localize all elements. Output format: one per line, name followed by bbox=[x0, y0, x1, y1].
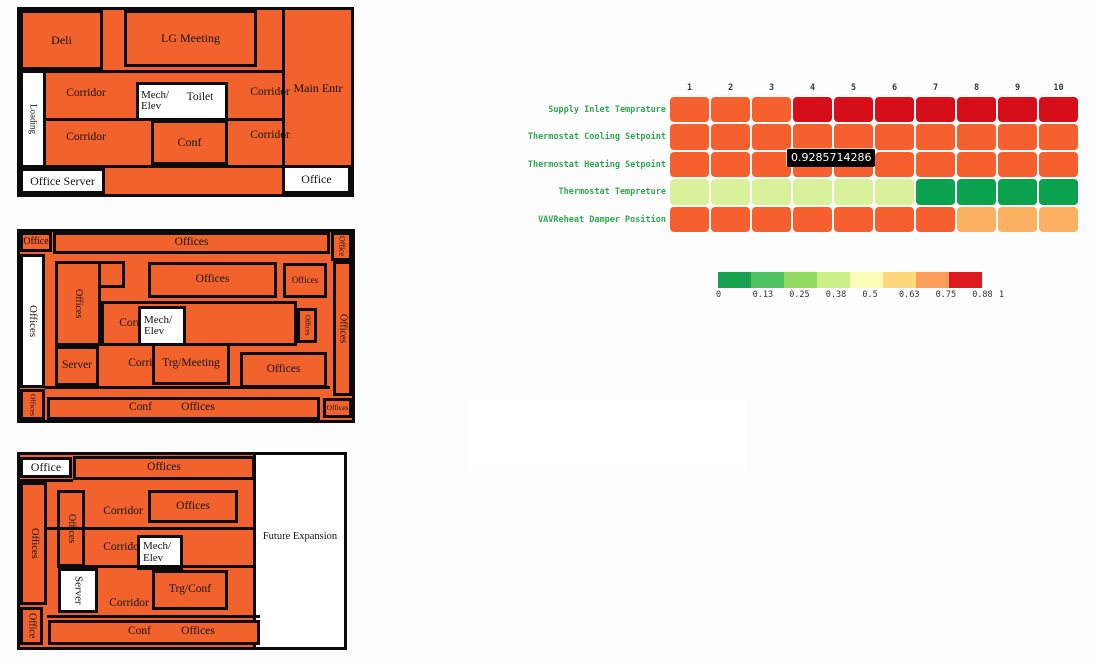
heatmap-cell-r5-c1[interactable] bbox=[670, 207, 709, 232]
heatmap-cell-r3-c1[interactable] bbox=[670, 152, 709, 177]
colorbar-segment-5 bbox=[850, 272, 883, 288]
floor-3-label-corridor-1: Corridor bbox=[92, 505, 154, 519]
heatmap-column-label-4: 4 bbox=[793, 83, 832, 93]
floor-2-room-offices-left: Offices bbox=[20, 254, 45, 388]
heatmap-cell-r4-c10[interactable] bbox=[1039, 179, 1078, 204]
floor-1-label-corridor-4: Corridor bbox=[239, 129, 301, 143]
heatmap-cell-r3-c9[interactable] bbox=[998, 152, 1037, 177]
floor-3-room-server: Server bbox=[58, 568, 98, 613]
heatmap-cell-r3-c2[interactable] bbox=[711, 152, 750, 177]
heatmap-cell-r5-c5[interactable] bbox=[834, 207, 873, 232]
floor-3-label-corridor-3: Corridor bbox=[98, 597, 160, 611]
heatmap-row-label-1: Supply Inlet Temprature bbox=[400, 105, 666, 115]
screenshot-canvas: DeliLG MeetingLoadingMech/ ElevToiletCon… bbox=[0, 0, 1094, 663]
heatmap-cell-r5-c2[interactable] bbox=[711, 207, 750, 232]
heatmap-cell-r1-c7[interactable] bbox=[916, 97, 955, 122]
floor-3-label-conf-b: Conf bbox=[117, 624, 162, 639]
heatmap-row-label-5: VAVReheat Damper Position bbox=[400, 215, 666, 225]
heatmap-cell-r5-c9[interactable] bbox=[998, 207, 1037, 232]
floor-3-label-offices-b: Offices bbox=[168, 624, 228, 639]
floor-2-room-offices-right: Offices bbox=[333, 261, 352, 396]
heatmap-column-label-1: 1 bbox=[670, 83, 709, 93]
floor-1-wall-h1 bbox=[20, 70, 285, 73]
floor-2-room-trg-meeting: Trg/Meeting bbox=[152, 343, 230, 385]
colorbar-segment-3 bbox=[784, 272, 817, 288]
heatmap-cell-r5-c4[interactable] bbox=[793, 207, 832, 232]
floor-3-wall-h3 bbox=[47, 615, 260, 618]
floor-2-room-offices-top: Offices bbox=[53, 232, 330, 254]
floorplan-floor-1: DeliLG MeetingLoadingMech/ ElevToiletCon… bbox=[17, 7, 354, 197]
heatmap-cell-r5-c10[interactable] bbox=[1039, 207, 1078, 232]
floor-2-label-offices-b: Offices bbox=[168, 400, 228, 416]
heatmap-row-label-4: Thermostat Tempreture bbox=[400, 187, 666, 197]
heatmap-row-label-3: Thermostat Heating Setpoint bbox=[400, 160, 666, 170]
heatmap-cell-r5-c6[interactable] bbox=[875, 207, 914, 232]
heatmap-cell-r2-c2[interactable] bbox=[711, 124, 750, 149]
heatmap-cell-r3-c8[interactable] bbox=[957, 152, 996, 177]
floor-3-room-offices-mid: Offices bbox=[148, 490, 238, 523]
colorbar-tick-0.38: 0.38 bbox=[826, 290, 846, 300]
heatmap-cell-r2-c3[interactable] bbox=[752, 124, 791, 149]
floor-1-room-loading: Loading bbox=[20, 70, 46, 168]
colorbar-tick-0.75: 0.75 bbox=[936, 290, 956, 300]
floor-3-room-trg-conf: Trg/Conf bbox=[152, 570, 228, 610]
heatmap-column-label-6: 6 bbox=[875, 83, 914, 93]
colorbar-tick-0.63: 0.63 bbox=[899, 290, 919, 300]
floor-3-room-offices-top: Offices bbox=[73, 456, 255, 480]
heatmap-tooltip: 0.9285714286 bbox=[787, 149, 875, 167]
heatmap-cell-r5-c7[interactable] bbox=[916, 207, 955, 232]
heatmap-cell-r4-c1[interactable] bbox=[670, 179, 709, 204]
heatmap-column-label-8: 8 bbox=[957, 83, 996, 93]
heatmap-cell-r2-c1[interactable] bbox=[670, 124, 709, 149]
floor-3-room-offices-left: Offices bbox=[20, 482, 47, 605]
floor-1-room-deli: Deli bbox=[20, 10, 103, 70]
colorbar-segment-1 bbox=[718, 272, 751, 288]
floor-2-room-offices-inner: Offices bbox=[55, 261, 101, 346]
heatmap-column-label-5: 5 bbox=[834, 83, 873, 93]
colorbar-tick-1: 1 bbox=[999, 290, 1004, 300]
colorbar-segment-7 bbox=[916, 272, 949, 288]
floorplan-floor-2: OfficeOfficesOfficeOfficesOfficesOffices… bbox=[17, 229, 355, 423]
colorbar-tick-0.5: 0.5 bbox=[862, 290, 877, 300]
floor-3-label-future-expansion: Future Expansion bbox=[256, 525, 344, 549]
blank-panel bbox=[470, 398, 745, 470]
floor-2-room-office-tl: Office bbox=[20, 232, 52, 252]
heatmap-cell-r4-c2[interactable] bbox=[711, 179, 750, 204]
heatmap-cell-r2-c8[interactable] bbox=[957, 124, 996, 149]
heatmap-cell-r1-c3[interactable] bbox=[752, 97, 791, 122]
floor-2-room-office-tr: Office bbox=[331, 232, 352, 261]
heatmap-cell-r2-c10[interactable] bbox=[1039, 124, 1078, 149]
floor-2-room-offices-small-tr: Offices bbox=[283, 263, 327, 298]
colorbar-segment-8 bbox=[949, 272, 982, 288]
floor-3-room-office-bl: Office bbox=[20, 607, 43, 645]
floorplan-floor-3: Future ExpansionOfficeOfficesOfficesOffi… bbox=[17, 452, 347, 650]
floor-2-room-offices-br: Offices bbox=[323, 398, 352, 418]
floor-1-label-corridor-2: Corridor bbox=[239, 86, 301, 100]
heatmap-cell-r5-c3[interactable] bbox=[752, 207, 791, 232]
floor-2-label-conf-b: Conf bbox=[118, 400, 163, 416]
floor-1-room-office-server: Office Server bbox=[20, 168, 105, 194]
floor-2-room-offices-small-mr: Offices bbox=[297, 308, 317, 343]
heatmap-column-label-3: 3 bbox=[752, 83, 791, 93]
floor-2-room-mech-elev: Mech/ Elev bbox=[138, 306, 186, 346]
heatmap-cell-r5-c8[interactable] bbox=[957, 207, 996, 232]
floor-1-room-office-br: Office bbox=[282, 165, 351, 194]
heatmap-cell-r3-c7[interactable] bbox=[916, 152, 955, 177]
heatmap-cell-r4-c6[interactable] bbox=[875, 179, 914, 204]
heatmap-cell-r1-c10[interactable] bbox=[1039, 97, 1078, 122]
heatmap-cell-r3-c10[interactable] bbox=[1039, 152, 1078, 177]
heatmap-row-label-2: Thermostat Cooling Setpoint bbox=[400, 132, 666, 142]
floor-3-area-future-expansion bbox=[255, 455, 344, 647]
heatmap-cell-r2-c6[interactable] bbox=[875, 124, 914, 149]
heatmap-cell-r1-c2[interactable] bbox=[711, 97, 750, 122]
heatmap-cell-r2-c5[interactable] bbox=[834, 124, 873, 149]
colorbar-segment-2 bbox=[751, 272, 784, 288]
heatmap-cell-r4-c8[interactable] bbox=[957, 179, 996, 204]
colorbar-tick-0.88: 0.88 bbox=[972, 290, 992, 300]
floor-1-label-mech-elev: Mech/ Elev bbox=[138, 85, 178, 117]
colorbar-tick-0.13: 0.13 bbox=[753, 290, 773, 300]
colorbar-tick-0.25: 0.25 bbox=[789, 290, 809, 300]
heatmap-cell-r4-c7[interactable] bbox=[916, 179, 955, 204]
heatmap-cell-r1-c1[interactable] bbox=[670, 97, 709, 122]
heatmap-cell-r2-c9[interactable] bbox=[998, 124, 1037, 149]
heatmap-cell-r4-c9[interactable] bbox=[998, 179, 1037, 204]
heatmap-column-label-10: 10 bbox=[1039, 83, 1078, 93]
heatmap-cell-r2-c4[interactable] bbox=[793, 124, 832, 149]
floor-3-wall-h1 bbox=[47, 527, 255, 530]
floor-3-wall-future bbox=[253, 455, 256, 647]
floor-2-room-offices-bl: Offices bbox=[20, 389, 45, 420]
heatmap-column-label-2: 2 bbox=[711, 83, 750, 93]
floor-1-label-corridor-1: Corridor bbox=[55, 87, 117, 101]
floor-1-room-conf: Conf bbox=[151, 120, 228, 165]
colorbar-tick-0: 0 bbox=[716, 290, 721, 300]
heatmap-cell-r4-c4[interactable] bbox=[793, 179, 832, 204]
floor-3-room-office-tl: Office bbox=[20, 457, 72, 478]
heatmap-cell-r3-c3[interactable] bbox=[752, 152, 791, 177]
heatmap-cell-r3-c6[interactable] bbox=[875, 152, 914, 177]
floor-2-room-offices-cr: Offices bbox=[240, 352, 327, 388]
heatmap-cell-r1-c8[interactable] bbox=[957, 97, 996, 122]
heatmap-cell-r4-c5[interactable] bbox=[834, 179, 873, 204]
heatmap-column-label-7: 7 bbox=[916, 83, 955, 93]
heatmap-cell-r1-c5[interactable] bbox=[834, 97, 873, 122]
floor-2-room-offices-big-top: Offices bbox=[148, 262, 277, 298]
heatmap-cell-r1-c4[interactable] bbox=[793, 97, 832, 122]
heatmap-cell-r2-c7[interactable] bbox=[916, 124, 955, 149]
heatmap-cell-r4-c3[interactable] bbox=[752, 179, 791, 204]
colorbar-segment-6 bbox=[883, 272, 916, 288]
colorbar-segment-4 bbox=[817, 272, 850, 288]
heatmap-cell-r1-c6[interactable] bbox=[875, 97, 914, 122]
floor-1-room-lg-meeting: LG Meeting bbox=[124, 10, 257, 67]
floor-1-label-corridor-3: Corridor bbox=[55, 131, 117, 145]
floor-2-room-server: Server bbox=[55, 346, 99, 386]
heatmap-cell-r1-c9[interactable] bbox=[998, 97, 1037, 122]
heatmap-column-label-9: 9 bbox=[998, 83, 1037, 93]
floor-1-label-toilet: Toilet bbox=[175, 90, 225, 106]
